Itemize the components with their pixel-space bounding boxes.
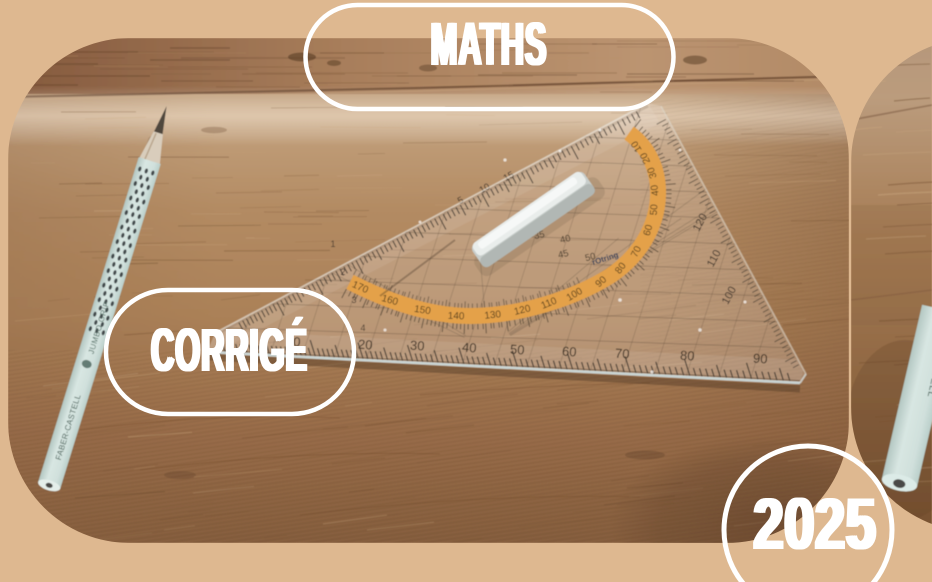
svg-text:2025: 2025 <box>756 483 879 565</box>
svg-text:1: 1 <box>330 239 335 249</box>
svg-text:30: 30 <box>410 338 425 354</box>
svg-text:40: 40 <box>462 340 477 356</box>
svg-text:20: 20 <box>358 337 373 353</box>
svg-text:3: 3 <box>351 295 356 305</box>
svg-text:40: 40 <box>649 184 662 197</box>
svg-text:80: 80 <box>680 348 695 364</box>
svg-text:MATHS: MATHS <box>432 11 549 79</box>
svg-text:2: 2 <box>340 267 345 277</box>
svg-text:70: 70 <box>615 346 630 362</box>
svg-text:CORRIGÉ: CORRIGÉ <box>153 317 310 385</box>
svg-text:4: 4 <box>360 323 365 333</box>
svg-text:50: 50 <box>510 342 525 358</box>
svg-text:90: 90 <box>753 351 768 367</box>
svg-text:50: 50 <box>649 203 661 215</box>
svg-text:130: 130 <box>484 309 502 322</box>
svg-text:140: 140 <box>448 311 465 323</box>
svg-text:60: 60 <box>562 344 577 360</box>
